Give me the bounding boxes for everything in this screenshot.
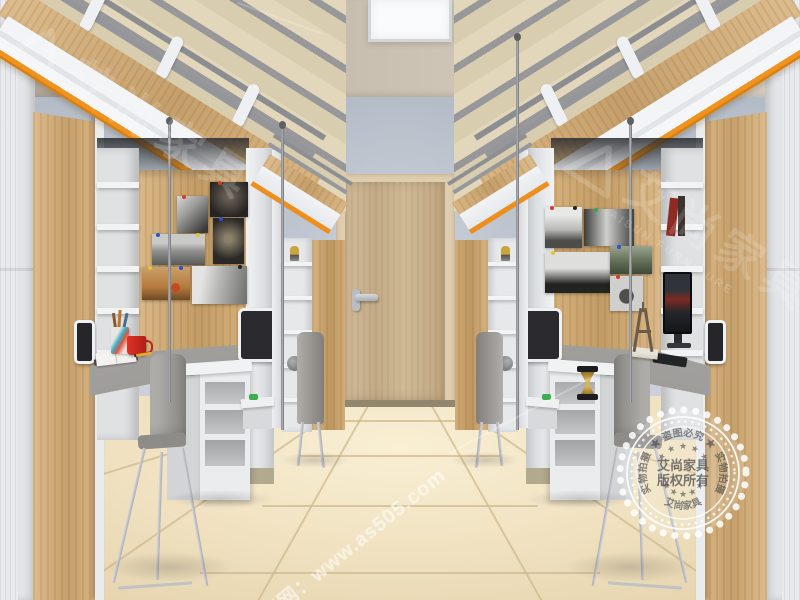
monitor-base xyxy=(667,343,691,348)
pushpin xyxy=(551,251,555,255)
pinned-photo xyxy=(610,276,643,311)
pushpin xyxy=(594,208,598,212)
pinned-photo xyxy=(142,267,190,300)
pole-finial xyxy=(166,117,173,125)
net-pole xyxy=(168,124,171,402)
paintbrush xyxy=(122,313,128,328)
dark-book xyxy=(678,196,685,236)
pushpin xyxy=(550,206,554,210)
eiffel-tower-crossbar xyxy=(636,330,651,333)
pushpin xyxy=(156,233,160,237)
net-pole xyxy=(629,124,632,402)
pinned-photo xyxy=(545,252,611,293)
pushpin xyxy=(182,195,186,199)
hourglass-cap xyxy=(577,394,598,400)
pinned-photo xyxy=(213,218,244,264)
pushpin xyxy=(218,181,222,185)
pushpin xyxy=(148,266,152,270)
pinned-photo xyxy=(584,209,634,246)
pole-finial xyxy=(279,121,286,129)
pushpin xyxy=(179,266,183,270)
pinned-photo xyxy=(152,234,205,265)
pinned-photo xyxy=(210,182,248,217)
pushpin xyxy=(238,265,242,269)
pole-finial xyxy=(627,117,634,125)
pushpin xyxy=(573,206,577,210)
hourglass-cap xyxy=(577,366,598,372)
dorm-room-render: 艾尚家具 艾尚家具 AISUN FURNITURE 官网：www.as505.c… xyxy=(0,0,800,600)
pole-finial xyxy=(514,33,521,41)
pinned-photo xyxy=(177,196,208,233)
pinned-photo xyxy=(192,266,247,304)
eiffel-tower-spire xyxy=(642,302,644,312)
paintbrush xyxy=(117,310,121,328)
pushpin xyxy=(616,275,620,279)
net-pole xyxy=(516,40,519,430)
monitor-screen xyxy=(663,272,692,334)
hourglass-glass xyxy=(580,371,595,396)
pushpin xyxy=(617,245,621,249)
net-pole xyxy=(281,128,284,430)
pinned-photo xyxy=(545,207,582,248)
pushpin xyxy=(219,217,223,221)
pushpin xyxy=(196,233,200,237)
scene-details xyxy=(0,0,800,600)
